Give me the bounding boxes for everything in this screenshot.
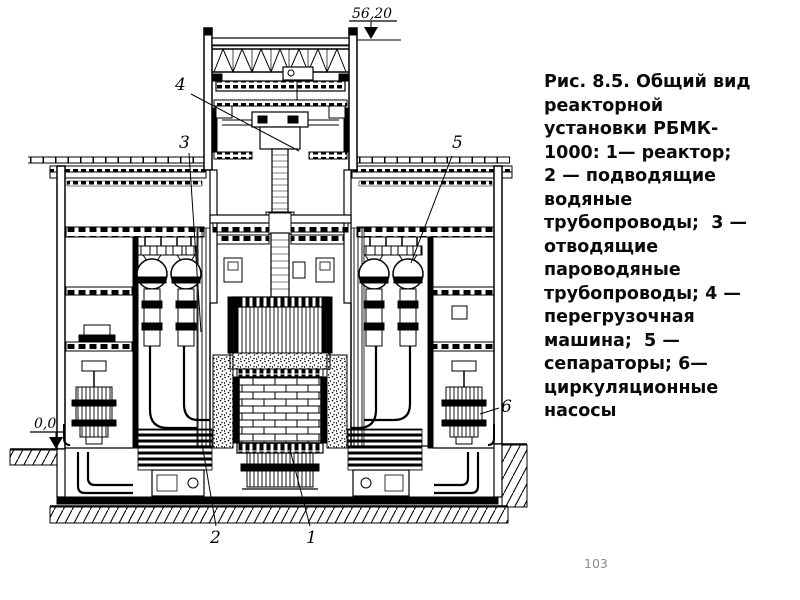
caption-line: 1000: 1— реактор;: [544, 142, 750, 166]
elevation-ground-label: 0,0: [34, 416, 56, 432]
shaft-interior: [217, 233, 344, 297]
callout-3: 3: [179, 133, 190, 153]
reactor-core-assembly: [213, 297, 347, 489]
page-number: 103: [584, 556, 608, 571]
caption-line: отводящие: [544, 236, 750, 260]
circulation-pump-left: [64, 361, 116, 445]
caption-line: установки РБМК-: [544, 118, 750, 142]
caption-line: циркуляционные: [544, 377, 750, 401]
reactor-hall-floor: [210, 213, 351, 234]
callout-2: 2: [209, 528, 221, 548]
caption-line: Рис. 8.5. Общий вид: [544, 71, 750, 95]
callout-4: 4: [174, 75, 186, 95]
caption-line: трубопроводы; 4 —: [544, 283, 750, 307]
caption-line: насосы: [544, 400, 750, 424]
caption-line: водяные: [544, 189, 750, 213]
roof-galleries: [28, 157, 510, 163]
caption-line: трубопроводы; 3 —: [544, 212, 750, 236]
caption-line: перегрузочная: [544, 306, 750, 330]
caption-line: реакторной: [544, 95, 750, 119]
callout-5: 5: [452, 133, 463, 153]
callout-1: 1: [306, 528, 317, 548]
reactor-cross-section-diagram: 56,20 0,0 4 3 5 6 2 1: [0, 0, 540, 560]
caption-line: машина; 5 —: [544, 330, 750, 354]
circulation-pump-right: [442, 361, 494, 445]
elevation-roof-label: 56,20: [352, 6, 392, 22]
callout-6: 6: [501, 397, 512, 417]
caption-line: сепараторы; 6—: [544, 353, 750, 377]
refueling-machine: [214, 100, 347, 218]
figure-caption: Рис. 8.5. Общий вид реакторной установки…: [544, 71, 750, 424]
caption-line: пароводяные: [544, 259, 750, 283]
caption-line: 2 — подводящие: [544, 165, 750, 189]
roof-truss: [212, 46, 349, 72]
slide-canvas: 56,20 0,0 4 3 5 6 2 1: [0, 0, 800, 600]
